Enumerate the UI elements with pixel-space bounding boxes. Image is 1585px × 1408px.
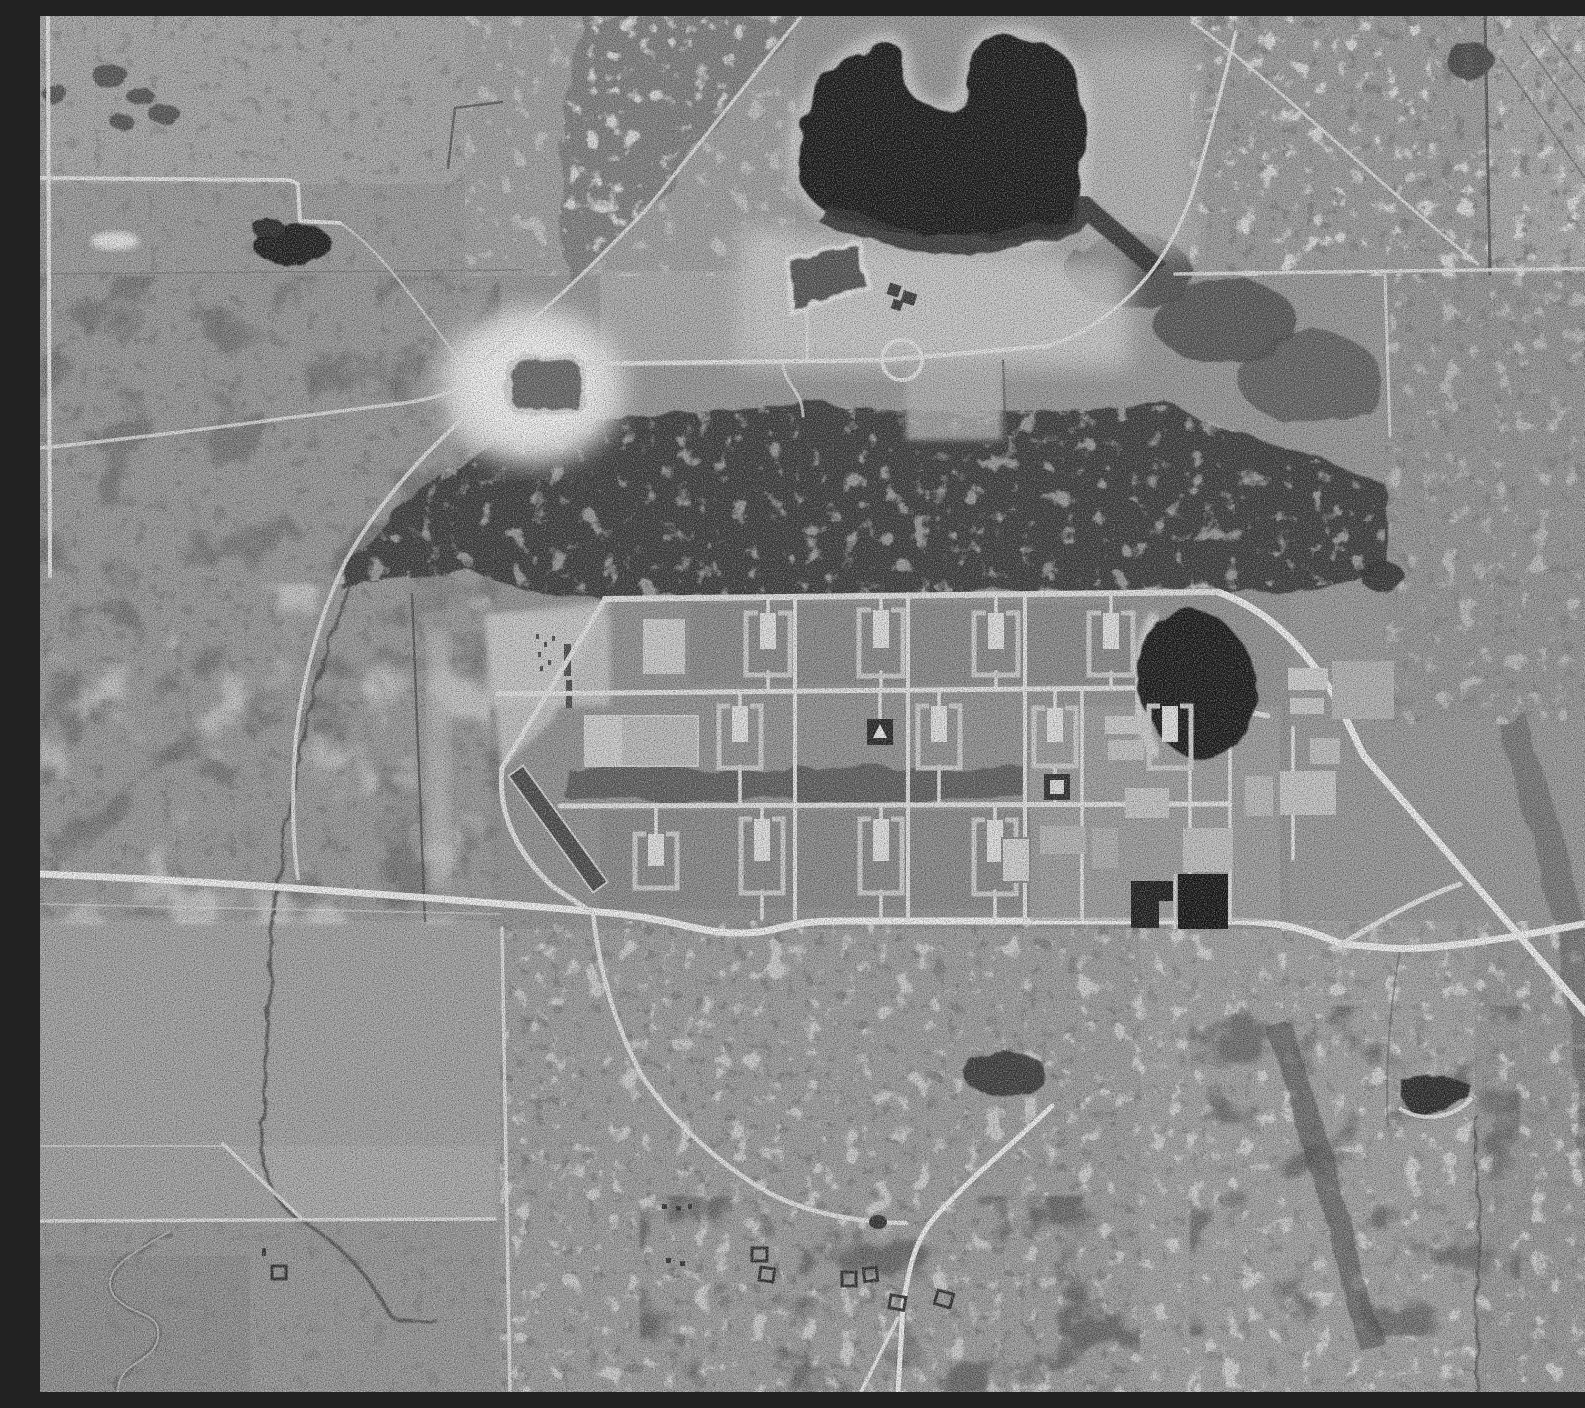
aerial-photo: Monochrome vertical aerial photograph <box>40 16 1585 1392</box>
aerial-photo-canvas <box>40 16 1585 1392</box>
film-grain <box>40 16 1585 1392</box>
